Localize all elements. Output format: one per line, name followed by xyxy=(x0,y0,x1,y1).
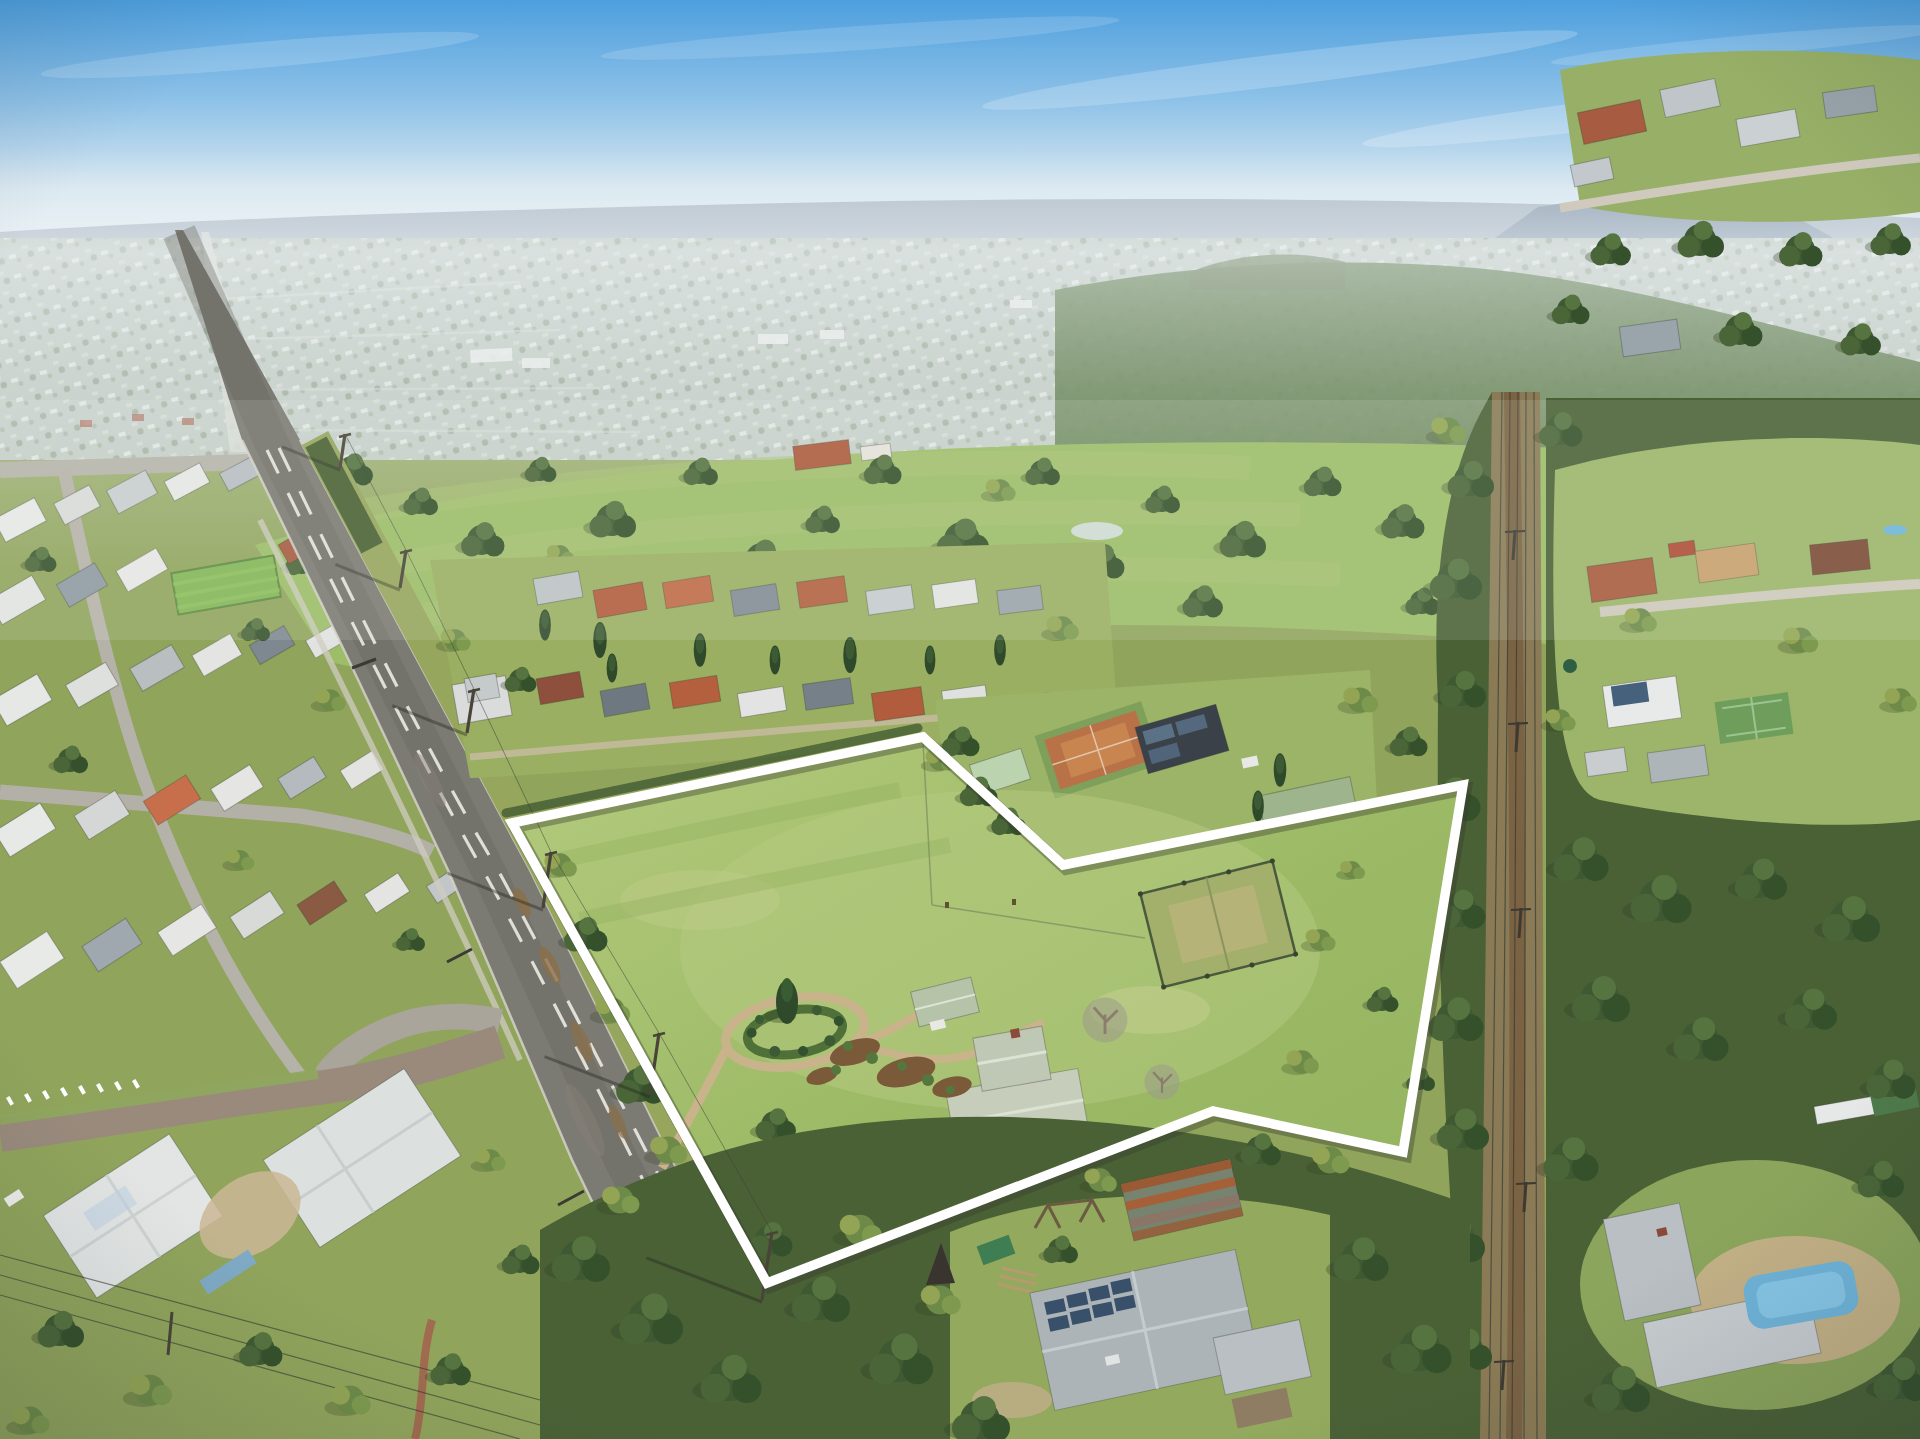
vignette xyxy=(0,0,1920,1439)
aerial-photo-stage xyxy=(0,0,1920,1439)
aerial-photo xyxy=(0,0,1920,1439)
